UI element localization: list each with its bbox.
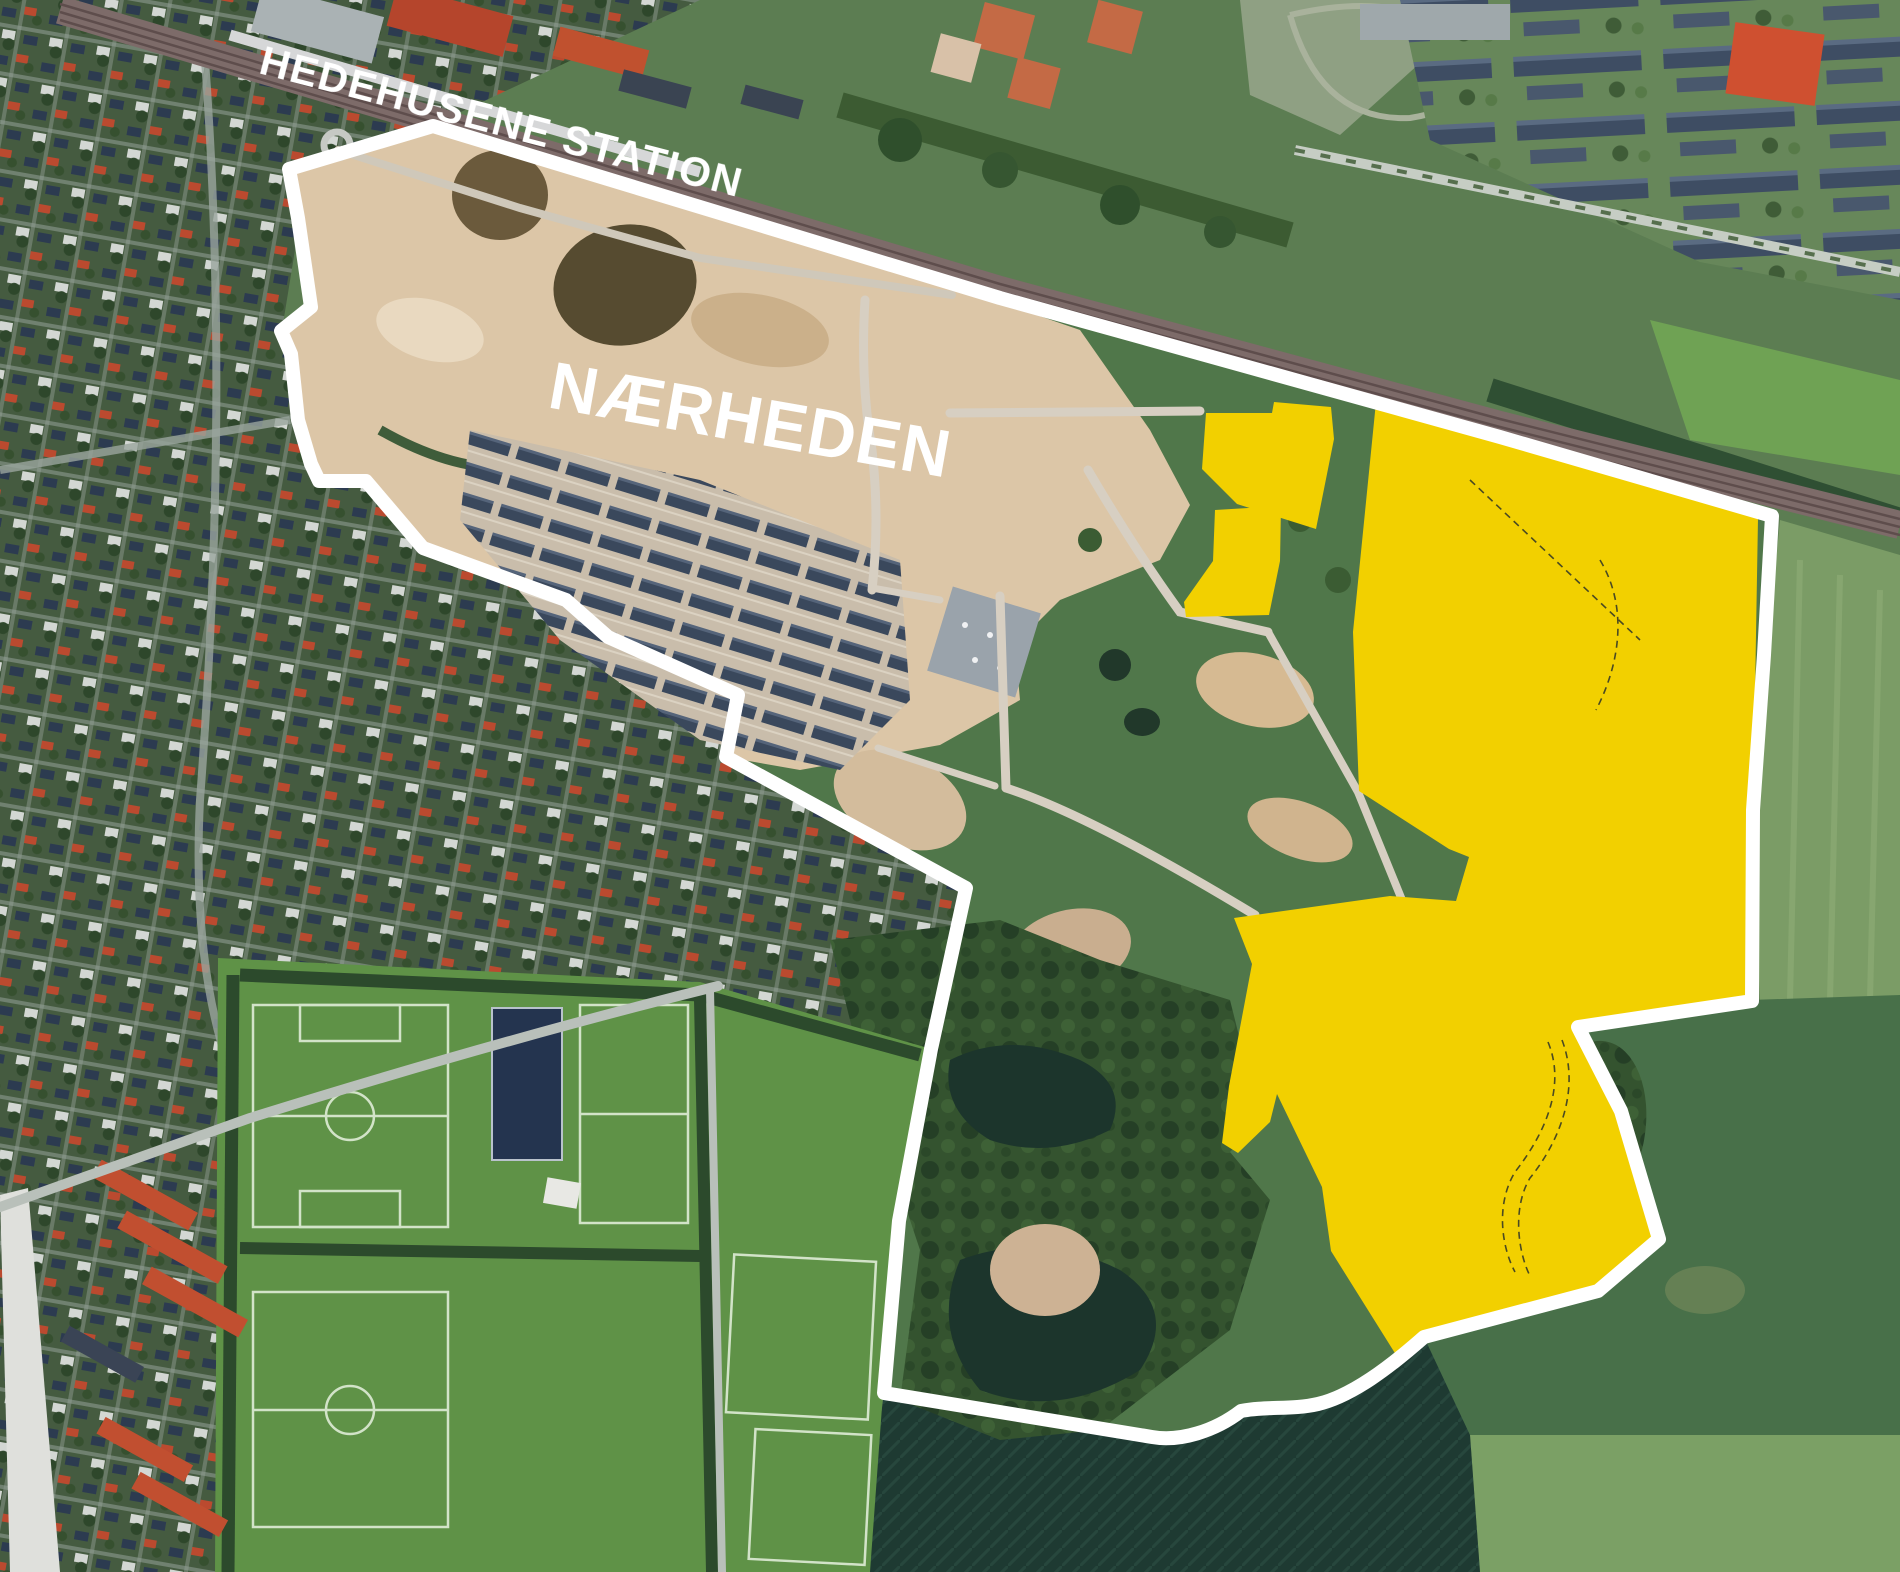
aerial-map: HEDEHUSENE STATION NÆRHEDEN <box>0 0 1900 1572</box>
aerial-photo-canvas <box>0 0 1900 1572</box>
